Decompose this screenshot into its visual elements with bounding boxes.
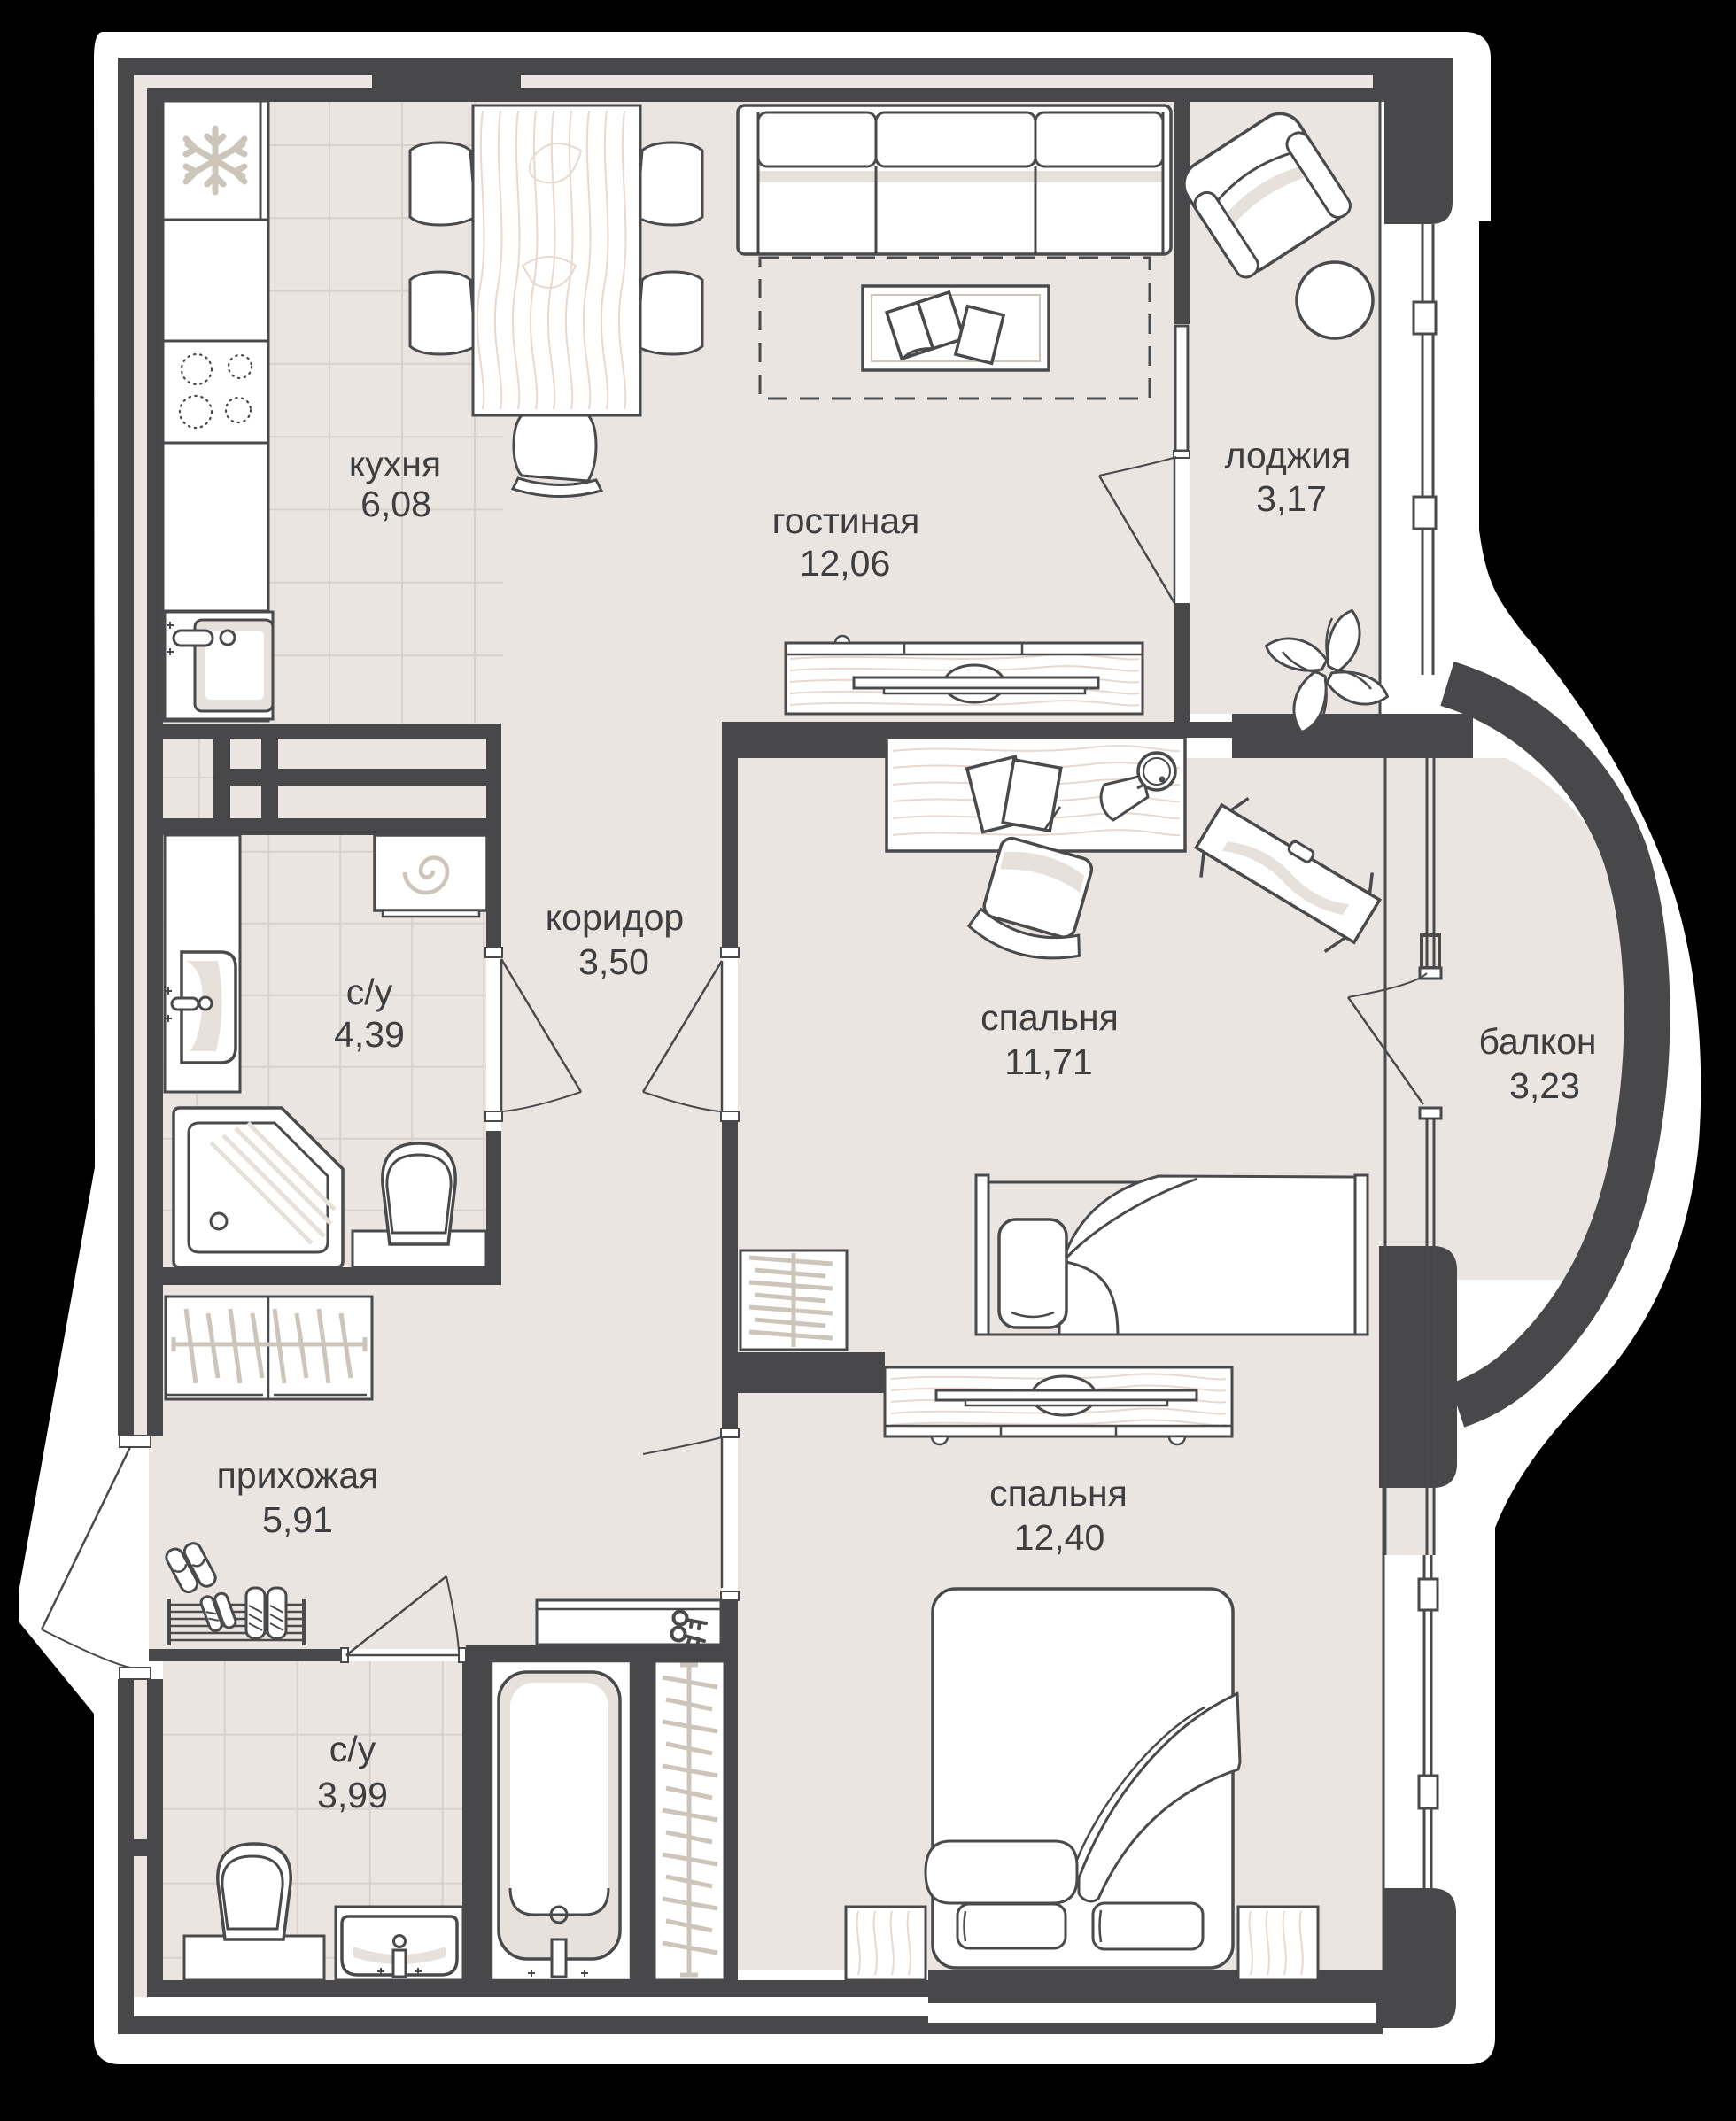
svg-text:прихожая: прихожая (217, 1455, 379, 1496)
svg-text:кухня: кухня (349, 444, 441, 484)
svg-text:6,08: 6,08 (360, 484, 431, 524)
svg-text:3,17: 3,17 (1256, 478, 1327, 519)
svg-text:спальня: спальня (980, 997, 1119, 1038)
svg-text:с/у: с/у (346, 971, 393, 1012)
svg-text:лоджия: лоджия (1225, 435, 1352, 476)
svg-text:с/у: с/у (329, 1729, 376, 1769)
svg-text:гостиная: гостиная (772, 500, 920, 541)
svg-text:4,39: 4,39 (334, 1014, 405, 1055)
svg-text:3,23: 3,23 (1509, 1065, 1580, 1106)
svg-text:5,91: 5,91 (262, 1499, 333, 1540)
svg-text:коридор: коридор (546, 897, 684, 938)
svg-text:балкон: балкон (1478, 1021, 1596, 1062)
svg-text:11,71: 11,71 (1004, 1041, 1093, 1082)
svg-text:12,06: 12,06 (800, 543, 891, 584)
svg-text:спальня: спальня (989, 1473, 1128, 1513)
svg-text:3,99: 3,99 (317, 1775, 388, 1815)
svg-text:12,40: 12,40 (1014, 1517, 1105, 1558)
svg-text:3,50: 3,50 (578, 941, 649, 982)
